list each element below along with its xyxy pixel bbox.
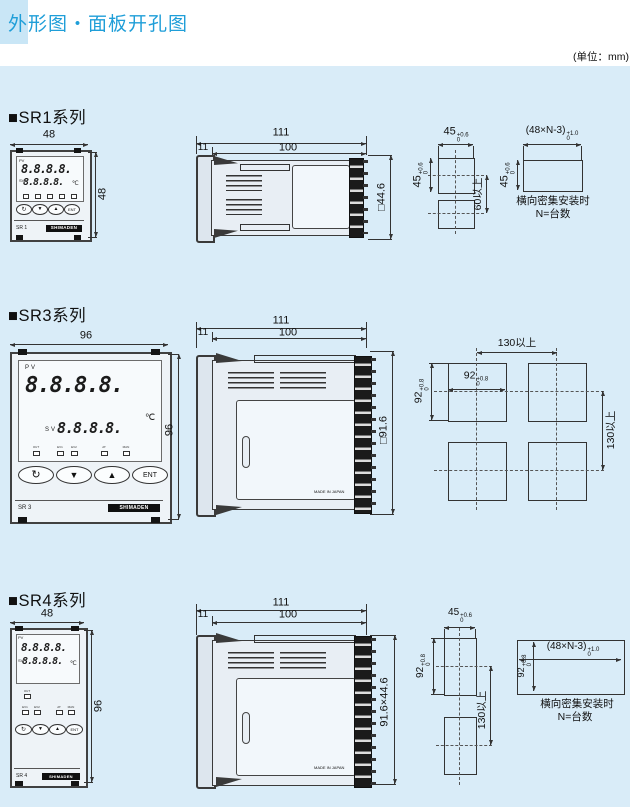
ent-button: ENT bbox=[66, 724, 83, 735]
dim-line bbox=[523, 144, 581, 145]
ent-button: ENT bbox=[64, 204, 80, 215]
sr3-front-height-label: 96 bbox=[165, 424, 176, 436]
vent-slots bbox=[228, 652, 274, 672]
brand-text: SHIMADEN bbox=[51, 226, 77, 231]
cutout-rect bbox=[444, 638, 477, 696]
sr4-cutout-width-label: 45+0.60 bbox=[448, 608, 472, 624]
cutout-square bbox=[438, 200, 475, 229]
center-line bbox=[556, 348, 557, 510]
terminal-block bbox=[354, 636, 372, 788]
extension-line bbox=[84, 782, 93, 783]
dim-line bbox=[477, 352, 557, 353]
brand-logo: SHIMADEN bbox=[46, 225, 82, 232]
center-line bbox=[455, 150, 456, 234]
indicator-label: AT bbox=[102, 446, 106, 449]
mounting-tab bbox=[74, 148, 81, 153]
loop-arrow-icon: ↻ bbox=[21, 727, 26, 733]
indicator-lamp bbox=[57, 451, 64, 456]
loop-arrow-icon: ↻ bbox=[31, 470, 40, 481]
sr4-dense-note1: 横向密集安装时 bbox=[540, 699, 614, 710]
mounting-tab bbox=[151, 517, 160, 523]
mounting-tab bbox=[74, 235, 81, 240]
pv-display: 8.8.8.8. bbox=[21, 642, 66, 653]
sr3-model-label: SR 3 bbox=[18, 505, 31, 511]
extension-line bbox=[196, 136, 197, 154]
center-line bbox=[459, 628, 460, 785]
tolerance-lower: 0 bbox=[476, 383, 488, 388]
center-line bbox=[434, 391, 604, 392]
dim-line bbox=[212, 622, 366, 623]
brand-logo: SHIMADEN bbox=[42, 773, 80, 780]
ent-label: ENT bbox=[71, 728, 79, 732]
extension-line bbox=[523, 146, 524, 160]
mounting-tab bbox=[16, 148, 23, 153]
indicator-label: OUT bbox=[24, 690, 30, 693]
extension-line bbox=[581, 146, 582, 160]
dim-value: 92 bbox=[464, 370, 476, 382]
dim-line bbox=[486, 175, 487, 213]
brand-text: SHIMADEN bbox=[49, 775, 73, 779]
sr4-depth-total-label: 111 bbox=[273, 598, 290, 609]
indicator-lamp bbox=[71, 194, 77, 199]
catalog-page: 外形图・面板开孔图 (单位：mm) ■SR1系列 48 PV 8.8.8.8. … bbox=[0, 0, 634, 807]
sr3-pitch-h-label: 130以上 bbox=[498, 338, 537, 349]
sr4-pitch-label: 130以上 bbox=[477, 691, 488, 730]
extension-line bbox=[370, 514, 394, 515]
mounting-tab bbox=[71, 781, 79, 786]
celsius-label: ℃ bbox=[72, 181, 79, 187]
sr4-display-window: PV 8.8.8.8. SV 8.8.8.8. ℃ bbox=[16, 634, 80, 684]
page-title: 外形图・面板开孔图 bbox=[8, 9, 188, 36]
down-arrow-icon: ▼ bbox=[70, 471, 79, 480]
dim-line bbox=[392, 351, 393, 514]
indicator-lamp bbox=[33, 451, 40, 456]
extension-line bbox=[429, 420, 448, 421]
dim-line bbox=[430, 158, 431, 192]
sr1-cutout-width-label: 45+0.60 bbox=[443, 127, 468, 144]
dim-line bbox=[394, 635, 395, 784]
extension-line bbox=[212, 616, 213, 626]
mounting-tab bbox=[15, 626, 23, 631]
extension-line bbox=[88, 237, 97, 238]
made-in-label: MADE IN JAPAN bbox=[314, 490, 344, 494]
up-arrow-icon: ▲ bbox=[55, 727, 60, 732]
terminal-fins bbox=[363, 160, 368, 234]
loop-arrow-icon: ↻ bbox=[21, 207, 26, 213]
indicator-label: AT bbox=[57, 706, 61, 709]
sr1-dense-note1: 横向密集安装时 bbox=[516, 196, 590, 207]
mounting-tab bbox=[16, 235, 23, 240]
sr3-heading: ■SR3系列 bbox=[8, 302, 86, 326]
dim-line bbox=[10, 622, 84, 623]
sr4-front-width-label: 48 bbox=[41, 609, 53, 620]
tolerance-lower: 0 bbox=[587, 653, 599, 658]
cutout-square bbox=[528, 442, 587, 501]
sr1-heading: ■SR1系列 bbox=[8, 104, 86, 128]
down-arrow-icon: ▼ bbox=[38, 207, 43, 212]
dim-line bbox=[431, 363, 432, 420]
dim-value: 92 bbox=[413, 392, 425, 404]
pv-display: 8.8.8.8. bbox=[25, 375, 123, 397]
cutout-square bbox=[528, 363, 587, 422]
sr4-depth-bezel-label: 11 bbox=[198, 610, 208, 620]
sr1-dense-note2: N=台数 bbox=[536, 209, 571, 220]
dim-line bbox=[10, 144, 88, 145]
mounting-tab bbox=[18, 517, 27, 523]
sr3-depth-total-label: 111 bbox=[273, 316, 290, 327]
extension-line bbox=[475, 629, 476, 638]
sr1-front-view: PV 8.8.8.8. SV 8.8.8.8. ℃ ↻ ▼ ▲ ENT SR 1… bbox=[10, 150, 92, 242]
up-button: ▲ bbox=[49, 724, 66, 735]
celsius-label: ℃ bbox=[70, 661, 77, 667]
sr3-front-view: PV 8.8.8.8. ℃ SV 8.8.8.8. OUT EV1 EV2 AT… bbox=[10, 352, 172, 524]
divider bbox=[15, 500, 163, 501]
indicator-lamp bbox=[23, 194, 29, 199]
dim-line bbox=[602, 391, 603, 470]
made-in-label: MADE IN JAPAN bbox=[314, 766, 344, 770]
sr1-dense-height-label: 45+0.60 bbox=[500, 162, 517, 187]
sr4-side-view: MADE IN JAPAN bbox=[196, 630, 392, 790]
dim-value: 92 bbox=[415, 667, 426, 678]
sv-display: 8.8.8.8. bbox=[23, 178, 63, 188]
sr1-side-height-label: □44.6 bbox=[377, 183, 388, 211]
sr4-side-height-label: 91.6×44.6 bbox=[380, 677, 391, 726]
down-button: ▼ bbox=[56, 466, 92, 484]
extension-line bbox=[196, 322, 197, 348]
dim-line bbox=[212, 338, 366, 339]
mounting-tab bbox=[18, 349, 27, 355]
sr1-display-window: PV 8.8.8.8. SV 8.8.8.8. ℃ bbox=[16, 156, 84, 202]
sr1-front-width-label: 48 bbox=[43, 130, 55, 141]
divider bbox=[14, 220, 84, 221]
down-arrow-icon: ▼ bbox=[38, 727, 43, 732]
indicator-lamp bbox=[35, 194, 41, 199]
label-plate bbox=[236, 400, 356, 500]
tolerance-lower: 0 bbox=[512, 162, 517, 174]
extension-line bbox=[366, 322, 367, 348]
label-plate bbox=[236, 678, 356, 776]
indicator-label: EV2 bbox=[71, 446, 77, 449]
indicator-lamp bbox=[47, 194, 53, 199]
sr4-dense-note2: N=台数 bbox=[558, 712, 593, 723]
cutout-rect bbox=[444, 717, 477, 775]
dim-value: (48×N-3) bbox=[547, 641, 587, 652]
indicator-lamp bbox=[56, 710, 63, 715]
dim-line bbox=[10, 344, 168, 345]
sr3-side-height-label: □91.6 bbox=[379, 416, 390, 444]
sr1-front-height-label: 48 bbox=[98, 188, 109, 200]
center-line bbox=[436, 666, 492, 667]
sr1-dense-width-label: (48×N-3)+1.00 bbox=[526, 126, 579, 142]
dim-line bbox=[517, 160, 518, 190]
sr1-cutout-height-label: 45+0.60 bbox=[413, 162, 430, 187]
indicator-lamp bbox=[22, 710, 29, 715]
dim-value: 45 bbox=[499, 175, 511, 187]
vent-slots bbox=[280, 372, 326, 392]
mode-button: ↻ bbox=[18, 466, 54, 484]
sr4-depth-body-label: 100 bbox=[279, 610, 297, 621]
extension-line bbox=[431, 694, 444, 695]
sr4-front-view: PV 8.8.8.8. SV 8.8.8.8. ℃ OUT EV1 EV2 AT… bbox=[10, 628, 88, 788]
extension-line bbox=[370, 784, 396, 785]
terminal-block bbox=[354, 356, 372, 514]
ent-button: ENT bbox=[132, 466, 168, 484]
indicator-lamp bbox=[24, 694, 31, 699]
side-slot bbox=[242, 712, 250, 744]
center-line bbox=[436, 745, 492, 746]
sr4-dense-height-label: 92+0.80 bbox=[517, 655, 533, 678]
up-button: ▲ bbox=[94, 466, 130, 484]
brand-logo: SHIMADEN bbox=[108, 504, 160, 512]
celsius-label: ℃ bbox=[145, 413, 155, 422]
sr1-model-label: SR 1 bbox=[16, 226, 27, 231]
indicator-lamp bbox=[68, 710, 75, 715]
dim-value: 45 bbox=[412, 175, 424, 187]
mounting-tab bbox=[15, 781, 23, 786]
dim-value: (48×N-3) bbox=[526, 125, 566, 136]
extension-line bbox=[444, 629, 445, 638]
dim-line bbox=[438, 144, 473, 145]
tolerance-lower: 0 bbox=[528, 655, 533, 667]
indicator-lamp bbox=[123, 451, 130, 456]
label-plate bbox=[292, 165, 350, 229]
indicator-label: MAN bbox=[123, 446, 130, 449]
sr3-display-window: PV 8.8.8.8. ℃ SV 8.8.8.8. OUT EV1 EV2 AT… bbox=[18, 360, 162, 462]
down-button: ▼ bbox=[32, 724, 49, 735]
sr3-depth-body-label: 100 bbox=[279, 328, 297, 339]
tolerance-lower: 0 bbox=[426, 379, 431, 391]
indicator-label: EV1 bbox=[57, 446, 63, 449]
sr4-dense-width-label: (48×N-3)+1.00 bbox=[547, 642, 600, 658]
cutout-square bbox=[448, 442, 507, 501]
extension-line bbox=[168, 519, 179, 520]
sr3-depth-bezel-label: 11 bbox=[198, 328, 208, 338]
dim-line bbox=[490, 666, 491, 745]
dim-value: 45 bbox=[448, 607, 459, 618]
terminal-fins bbox=[371, 358, 376, 510]
sr1-depth-bezel-label: 11 bbox=[198, 143, 208, 153]
unit-note: (单位：mm) bbox=[573, 49, 629, 64]
sv-display: 8.8.8.8. bbox=[57, 421, 121, 436]
vent-slots bbox=[226, 175, 262, 191]
sr3-cutout-width-label: 92+0.80 bbox=[464, 371, 489, 388]
down-button: ▼ bbox=[32, 204, 48, 215]
sr4-model-label: SR 4 bbox=[16, 774, 27, 779]
tolerance-lower: 0 bbox=[425, 162, 430, 174]
up-button: ▲ bbox=[48, 204, 64, 215]
extension-line bbox=[368, 239, 392, 240]
dim-line bbox=[390, 155, 391, 239]
top-rail bbox=[254, 635, 356, 643]
pv-display: 8.8.8.8. bbox=[21, 163, 71, 175]
case-slot bbox=[240, 164, 290, 171]
sr1-side-view bbox=[196, 153, 368, 241]
indicator-lamp bbox=[101, 451, 108, 456]
sr3-pitch-v-label: 130以上 bbox=[606, 411, 617, 450]
side-slot bbox=[242, 436, 250, 468]
sr1-depth-body-label: 100 bbox=[279, 143, 297, 154]
sv-display: 8.8.8.8. bbox=[22, 657, 62, 667]
vent-slots bbox=[280, 652, 326, 672]
center-line bbox=[428, 175, 484, 176]
sr3-cutout-height-label: 92+0.80 bbox=[414, 379, 431, 404]
sr3-front-width-label: 96 bbox=[80, 331, 92, 342]
sr1-depth-total-label: 111 bbox=[273, 128, 290, 139]
dim-value: 92 bbox=[516, 667, 526, 677]
sv-label: SV bbox=[45, 427, 57, 433]
ent-label: ENT bbox=[68, 208, 76, 212]
indicator-lamp bbox=[59, 194, 65, 199]
tolerance-lower: 0 bbox=[566, 137, 578, 142]
dim-line bbox=[433, 638, 434, 694]
up-arrow-icon: ▲ bbox=[108, 471, 117, 480]
divider bbox=[14, 768, 80, 769]
center-line bbox=[434, 470, 604, 471]
tolerance-lower: 0 bbox=[427, 654, 432, 666]
indicator-lamp bbox=[34, 710, 41, 715]
indicator-label: OUT bbox=[33, 446, 39, 449]
terminal-block bbox=[349, 158, 364, 238]
sr4-front-height-label: 96 bbox=[94, 700, 105, 712]
dim-line bbox=[519, 659, 621, 660]
tolerance-lower: 0 bbox=[457, 139, 469, 144]
vent-slots bbox=[228, 372, 274, 392]
pv-label: PV bbox=[25, 365, 37, 371]
brand-text: SHIMADEN bbox=[119, 506, 148, 511]
cutout-square bbox=[438, 158, 475, 194]
indicator-lamp bbox=[71, 451, 78, 456]
top-rail bbox=[254, 355, 356, 363]
sr4-cutout-height-label: 92+0.80 bbox=[416, 654, 432, 678]
pv-label: PV bbox=[18, 636, 23, 640]
vent-slots bbox=[226, 199, 262, 215]
extension-line bbox=[438, 146, 439, 158]
ent-label: ENT bbox=[143, 472, 157, 479]
extension-line bbox=[473, 146, 474, 158]
sr1-pitch-label: 60以上 bbox=[473, 178, 484, 211]
mounting-tab bbox=[151, 349, 160, 355]
mode-button: ↻ bbox=[16, 204, 32, 215]
indicator-label: EV2 bbox=[34, 706, 40, 709]
extension-line bbox=[212, 332, 213, 342]
sr3-side-view: MADE IN JAPAN bbox=[196, 348, 392, 520]
dim-line bbox=[178, 354, 179, 519]
indicator-label: EV1 bbox=[22, 706, 28, 709]
terminal-fins bbox=[371, 638, 376, 784]
center-line bbox=[428, 213, 484, 214]
dim-value: 45 bbox=[443, 126, 455, 138]
dense-cutout-rect bbox=[523, 160, 583, 192]
tolerance-lower: 0 bbox=[460, 619, 472, 624]
mode-button: ↻ bbox=[15, 724, 32, 735]
case-slot bbox=[240, 224, 290, 231]
mounting-tab bbox=[71, 626, 79, 631]
up-arrow-icon: ▲ bbox=[54, 207, 59, 212]
dim-line bbox=[533, 642, 534, 691]
dim-line bbox=[448, 389, 505, 390]
indicator-label: MAN bbox=[68, 706, 75, 709]
